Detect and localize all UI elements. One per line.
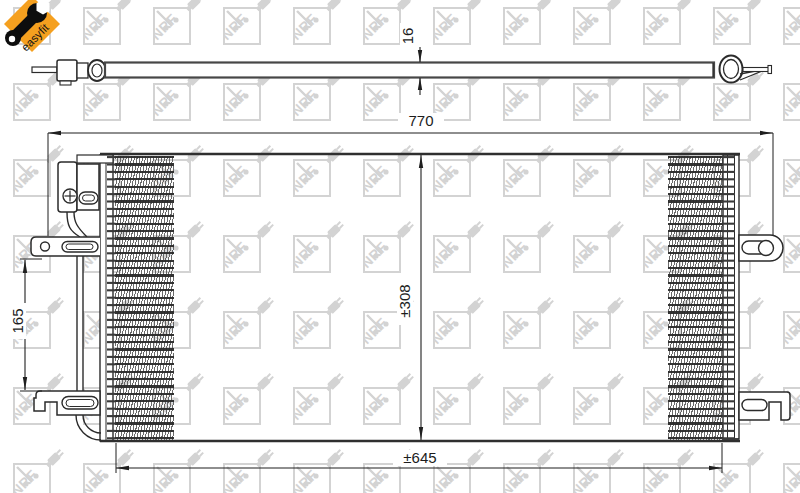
bracket-upper-left [31,237,100,256]
condenser-technical-drawing [0,0,800,493]
dim-label-overall-width: 770 [398,113,444,129]
dim-label-core-width: ±645 [393,450,447,466]
bracket-upper-right [739,235,783,261]
dim-label-thickness: 16 [400,23,416,49]
dim-label-core-height: ±308 [397,277,413,325]
technical-drawing-page: NRFNRFNRFNRFNRFNRFNRFNRFNRFNRFNRFNRFNRFN… [0,0,800,493]
bracket-lower-left [34,391,100,415]
easyfit-logo: easyfit [0,0,74,74]
dimension-lines [20,47,773,473]
screw-icon [63,189,77,203]
bracket-lower-right [739,392,790,420]
top-view-condenser [32,56,772,86]
dim-label-bracket-spacing: 165 [10,303,26,339]
